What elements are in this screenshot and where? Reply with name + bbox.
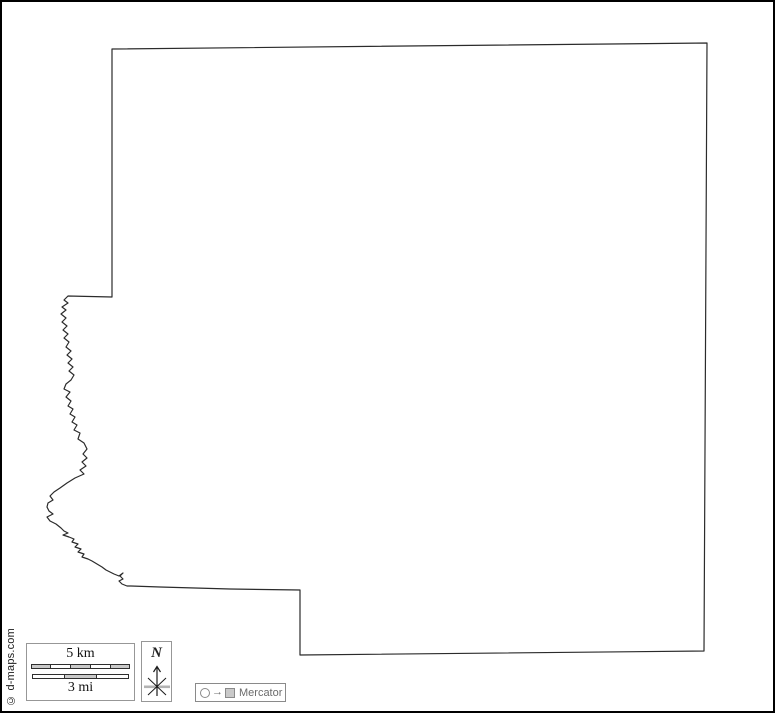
image-border-frame bbox=[0, 0, 775, 713]
